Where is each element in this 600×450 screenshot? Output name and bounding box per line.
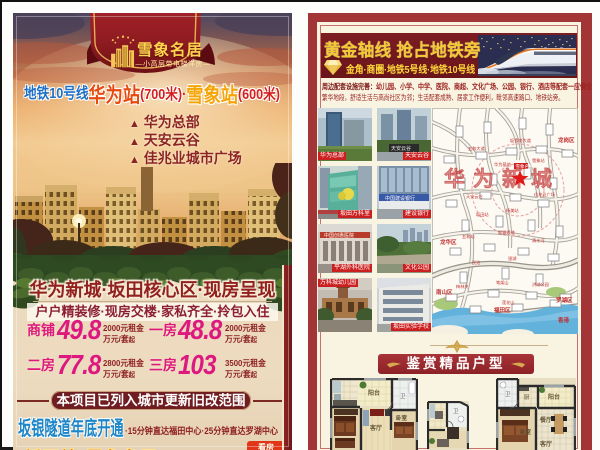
svg-text:龙华区: 龙华区 (439, 238, 457, 246)
svg-text:中国建设银行: 中国建设银行 (385, 195, 415, 202)
svg-text:客厅: 客厅 (369, 424, 382, 432)
svg-text:中国创惠医院: 中国创惠医院 (324, 232, 354, 239)
svg-text:厨: 厨 (524, 394, 530, 401)
svg-text:民治: 民治 (472, 259, 480, 266)
svg-text:坂银通道: 坂银通道 (498, 229, 516, 236)
svg-text:天安云谷: 天安云谷 (391, 145, 411, 152)
svg-text:莲花山: 莲花山 (502, 299, 515, 306)
svg-text:坂雪岗大道: 坂雪岗大道 (510, 137, 532, 144)
svg-text:雪象名居: 雪象名居 (516, 163, 534, 170)
svg-text:坂田站: 坂田站 (476, 211, 489, 218)
svg-text:卫: 卫 (400, 393, 406, 400)
svg-text:餐厅: 餐厅 (539, 416, 552, 424)
svg-text:笔架山: 笔架山 (496, 279, 509, 286)
svg-text:五和站: 五和站 (462, 233, 475, 240)
svg-text:银湖: 银湖 (508, 255, 516, 262)
svg-text:梅林关: 梅林关 (456, 283, 469, 290)
svg-text:佳兆业广场: 佳兆业广场 (534, 191, 555, 198)
svg-text:龙岗区: 龙岗区 (557, 136, 575, 144)
svg-text:香港: 香港 (558, 316, 570, 324)
svg-text:阳台: 阳台 (548, 393, 560, 401)
svg-text:卧室: 卧室 (520, 428, 532, 436)
svg-text:卫: 卫 (505, 391, 511, 398)
svg-text:清水河: 清水河 (532, 237, 545, 244)
svg-text:杨美站: 杨美站 (506, 207, 519, 214)
svg-text:华为基地: 华为基地 (494, 161, 512, 168)
svg-text:福田区: 福田区 (493, 306, 511, 314)
svg-text:卫: 卫 (453, 408, 459, 415)
svg-text:天安云谷: 天安云谷 (466, 193, 484, 200)
svg-text:南山区: 南山区 (436, 288, 453, 296)
svg-text:雪象站: 雪象站 (532, 157, 545, 164)
svg-text:罗湖区: 罗湖区 (556, 296, 573, 304)
svg-text:贝尔路: 贝尔路 (450, 169, 463, 176)
svg-text:五和大道: 五和大道 (468, 145, 486, 152)
svg-text:阳台: 阳台 (368, 389, 380, 397)
svg-text:客厅: 客厅 (539, 440, 552, 448)
svg-text:洪湖公园: 洪湖公园 (532, 281, 549, 288)
svg-text:卧室: 卧室 (396, 414, 408, 422)
